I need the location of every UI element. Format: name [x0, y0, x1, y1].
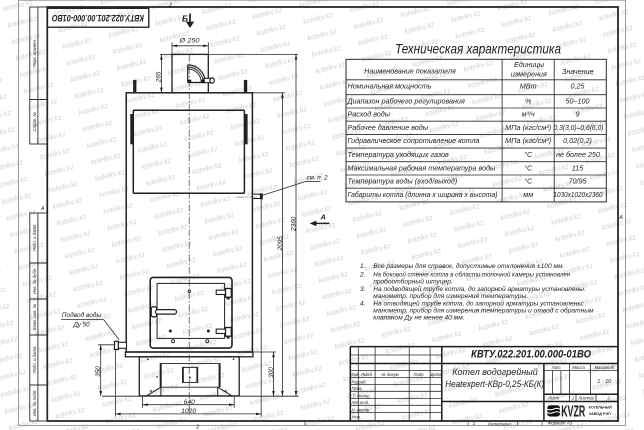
svg-text:Температура воды (вход/выход): Температура воды (вход/выход): [348, 177, 458, 186]
svg-text:Все размеры для справок, допус: Все размеры для справок, допустимые откл…: [373, 262, 564, 270]
svg-text:Изм: Изм: [350, 372, 358, 377]
svg-text:1.: 1.: [360, 263, 366, 270]
svg-text:0,3(3,0)–0,6(6,0): 0,3(3,0)–0,6(6,0): [554, 123, 604, 132]
svg-text:Нач.отд.: Нач.отд.: [352, 400, 370, 405]
svg-text:2360: 2360: [290, 216, 297, 232]
svg-text:265: 265: [156, 71, 163, 83]
svg-text:см. п. 2: см. п. 2: [307, 175, 329, 182]
svg-text:°С: °С: [524, 150, 533, 159]
svg-text:2095: 2095: [277, 236, 284, 252]
svg-text:Масса: Масса: [572, 365, 585, 370]
svg-text:Наименование показателя: Наименование показателя: [364, 67, 456, 76]
svg-text:Н. контр.: Н. контр.: [352, 407, 371, 412]
svg-text:Ø 250: Ø 250: [178, 37, 199, 44]
svg-text:№ докум.: № докум.: [381, 372, 399, 377]
svg-text:манометр, прибор для измерения: манометр, прибор для измерения температу…: [373, 307, 594, 315]
svg-text:Инв. № подл.: Инв. № подл.: [32, 390, 37, 417]
svg-text:0,02(0,2): 0,02(0,2): [563, 136, 592, 145]
svg-text:ЗАВОД РЭП: ЗАВОД РЭП: [589, 411, 611, 416]
svg-text:°С: °С: [524, 163, 533, 172]
svg-text:Утв.: Утв.: [352, 414, 362, 419]
svg-text:А: А: [40, 206, 45, 212]
svg-text:70/95: 70/95: [569, 177, 588, 186]
svg-text:Номинальная мощность: Номинальная мощность: [348, 82, 432, 91]
svg-text:А: А: [320, 212, 326, 221]
svg-text:1020: 1020: [181, 408, 196, 415]
svg-text:2: 2: [195, 424, 199, 430]
svg-text:Справ. №: Справ. №: [32, 112, 37, 132]
svg-text:3.: 3.: [360, 286, 366, 293]
svg-text:Единицы: Единицы: [514, 60, 545, 69]
svg-text:Листов: Листов: [577, 396, 594, 401]
svg-text:1: 1: [572, 396, 574, 401]
svg-text:Перв. примен.: Перв. примен.: [32, 39, 37, 68]
svg-text:Ду 50: Ду 50: [72, 321, 90, 328]
svg-text:300: 300: [268, 367, 275, 378]
svg-text:Heatexpert-КВр-0,25-КБ(К): Heatexpert-КВр-0,25-КБ(К): [445, 379, 544, 389]
svg-text:Значение: Значение: [562, 67, 594, 76]
svg-text:Подп.: Подп.: [413, 372, 424, 377]
svg-text:Максимальная рабочая температу: Максимальная рабочая температура воды: [348, 163, 496, 172]
svg-text:Температура уходящих газов: Температура уходящих газов: [348, 150, 450, 159]
svg-text:Формат А3: Формат А3: [548, 421, 573, 426]
svg-text:Подп. и дата: Подп. и дата: [32, 346, 37, 374]
svg-text:%: %: [525, 96, 532, 105]
svg-text:Инв. № дубл.: Инв. № дубл.: [32, 268, 37, 294]
svg-text:манометр, прибор для измерения: манометр, прибор для измерения температу…: [373, 292, 528, 300]
svg-text:Т. контр.: Т. контр.: [353, 393, 371, 398]
svg-text:мм: мм: [523, 190, 533, 199]
svg-text:640: 640: [184, 399, 195, 406]
svg-text:50–100: 50–100: [566, 96, 590, 105]
svg-text:Котел водогрейный: Котел водогрейный: [452, 367, 538, 377]
svg-text:Взам. инв. №: Взам. инв. №: [32, 303, 37, 330]
svg-text:9: 9: [576, 110, 580, 119]
svg-text:клапаном Ду не менее 40 мм.: клапаном Ду не менее 40 мм.: [373, 315, 465, 322]
svg-text:На отводящей трубе котла, до з: На отводящей трубе котла, до запорной ар…: [373, 299, 584, 307]
svg-text:штуцер для отбора: штуцер для отбора: [236, 195, 258, 198]
svg-text:Рабочее давление воды: Рабочее давление воды: [348, 123, 429, 132]
svg-text:1030х1020х2360: 1030х1020х2360: [554, 190, 603, 199]
svg-text:пробоотборный штуцер.: пробоотборный штуцер.: [373, 278, 453, 286]
svg-text:МПа (кгс/см²): МПа (кгс/см²): [505, 123, 551, 132]
svg-text:МПа (кгс/см²): МПа (кгс/см²): [505, 136, 551, 145]
svg-text:Лист: Лист: [360, 372, 372, 377]
svg-text:не более 250: не более 250: [556, 150, 600, 159]
svg-text:м³/ч: м³/ч: [522, 110, 535, 119]
svg-text:Масштаб: Масштаб: [595, 365, 615, 370]
svg-text:KVZR: KVZR: [561, 403, 585, 420]
svg-text:КВТУ.022.201.00.000-01ВО: КВТУ.022.201.00.000-01ВО: [51, 13, 144, 24]
svg-text:115: 115: [572, 163, 584, 172]
svg-text:350: 350: [95, 366, 102, 377]
svg-text:Лист: Лист: [547, 396, 559, 401]
svg-text:МВт: МВт: [520, 82, 537, 91]
svg-text:На боковой стенке котла в обла: На боковой стенке котла в области топочн…: [373, 270, 570, 278]
svg-text:Лит.: Лит.: [551, 365, 562, 370]
svg-text:Диапазон рабочего регулировани: Диапазон рабочего регулирования: [347, 96, 466, 105]
svg-text:На подводящей трубе котла, до: На подводящей трубе котла, до запорной а…: [373, 285, 586, 293]
svg-text:измерения: измерения: [511, 70, 547, 79]
svg-text:КОТЕЛЬНЫЙ: КОТЕЛЬНЫЙ: [589, 404, 612, 409]
svg-text:Подвод воды: Подвод воды: [62, 312, 102, 319]
svg-text:Разраб.: Разраб.: [352, 379, 367, 384]
svg-text:2.: 2.: [359, 271, 366, 278]
svg-text:2: 2: [168, 3, 172, 9]
svg-text:Пров.: Пров.: [352, 386, 363, 391]
svg-text:°С: °С: [524, 177, 533, 186]
svg-text:Габариты котла (длинна х ширин: Габариты котла (длинна х ширина х высота…: [348, 190, 498, 199]
svg-text:Расход воды: Расход воды: [348, 110, 391, 119]
svg-text:Техническая характеристика: Техническая характеристика: [395, 42, 561, 58]
svg-text:4.: 4.: [360, 300, 366, 307]
svg-text:0,25: 0,25: [571, 82, 586, 91]
svg-text:Дата: Дата: [429, 372, 442, 377]
svg-text:1 : 10: 1 : 10: [597, 379, 612, 385]
svg-text:Копировал: Копировал: [488, 421, 511, 426]
svg-text:Подп. и дата: Подп. и дата: [32, 224, 37, 252]
svg-text:КВТУ.022.201.00.000-01ВО: КВТУ.022.201.00.000-01ВО: [471, 349, 592, 361]
svg-text:Гидравлическое сопротивление к: Гидравлическое сопротивление котла: [348, 136, 480, 145]
svg-text:А: А: [618, 215, 623, 221]
